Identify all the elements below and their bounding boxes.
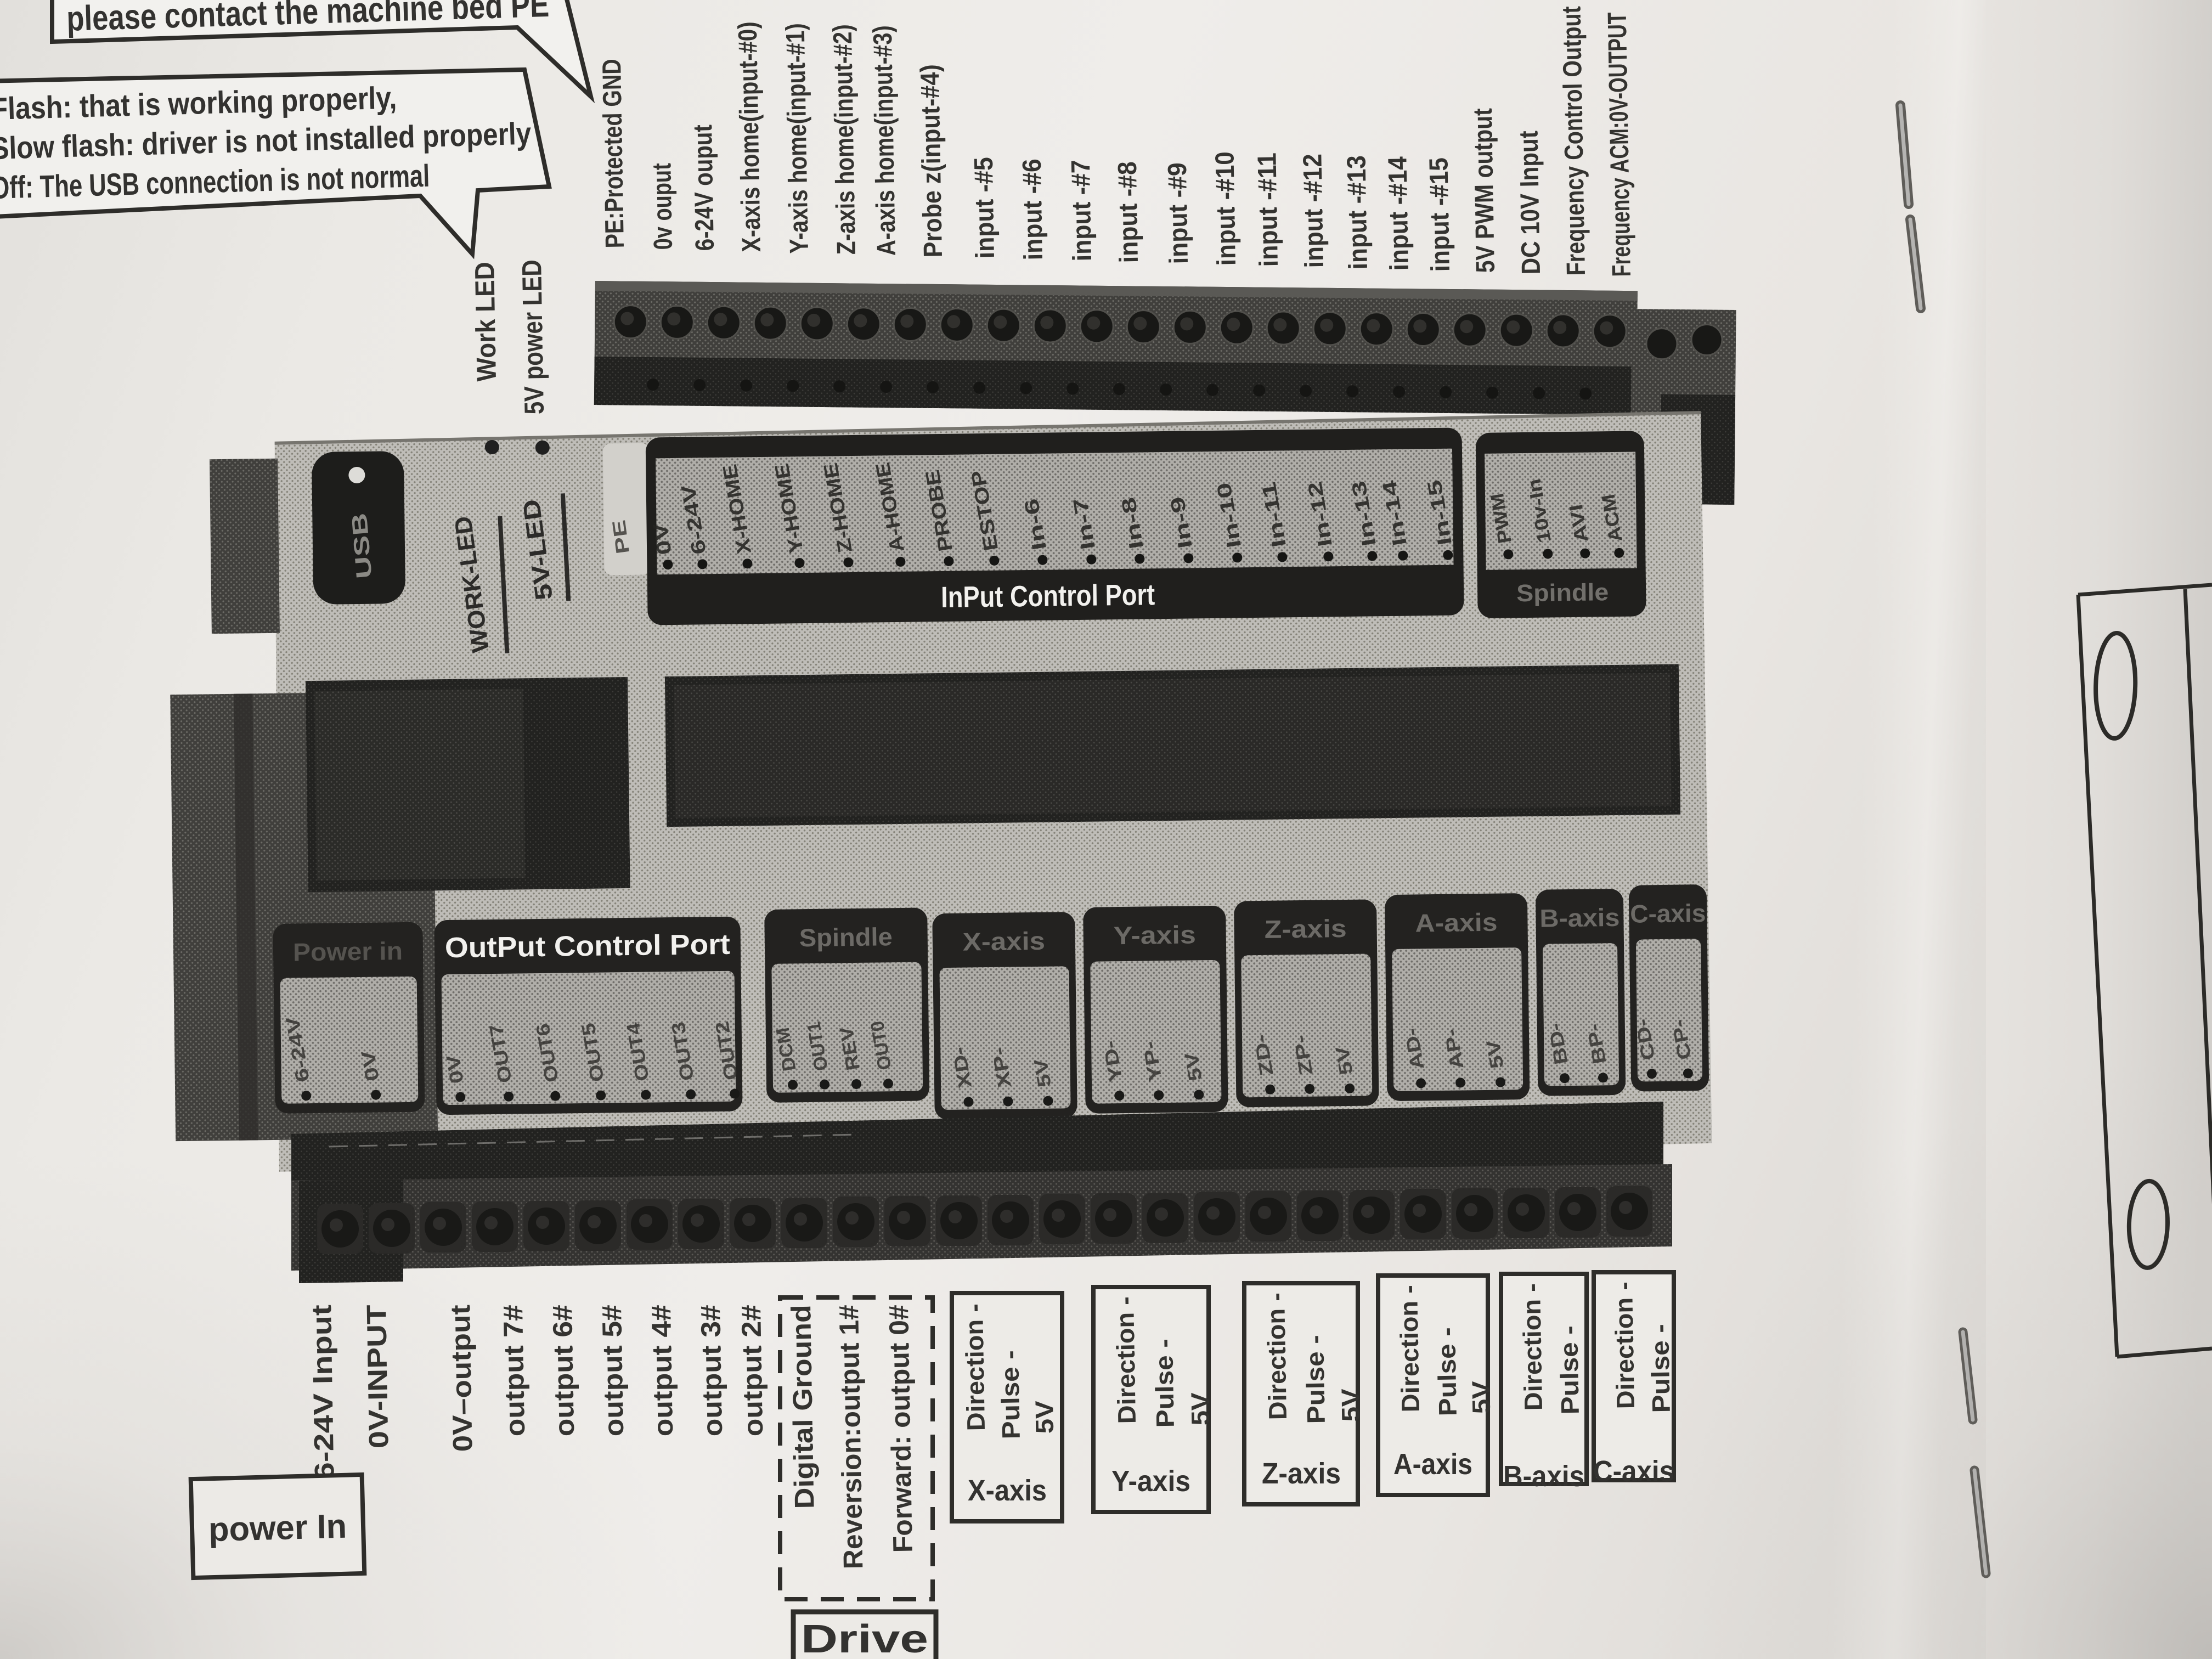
svg-text:0V–output: 0V–output <box>445 1304 478 1452</box>
svg-text:Pulse -: Pulse - <box>1300 1335 1330 1424</box>
svg-text:6-24V Input: 6-24V Input <box>306 1304 340 1480</box>
svg-text:0v ouput: 0v ouput <box>647 163 678 250</box>
svg-text:Frequency Control Output : 0: Frequency Control Output : 0 <box>1556 0 1591 276</box>
svg-text:input -#7: input -#7 <box>1066 160 1097 262</box>
svg-text:B-axis: B-axis <box>1539 903 1620 933</box>
svg-text:A-axis: A-axis <box>1415 908 1498 938</box>
svg-text:Forward: output 0#: Forward: output 0# <box>883 1305 918 1553</box>
svg-text:Reversion:output 1#: Reversion:output 1# <box>833 1305 868 1570</box>
svg-text:Pulse -: Pulse - <box>1149 1339 1180 1428</box>
svg-text:Z-axis: Z-axis <box>1264 914 1347 944</box>
svg-text:A-axis home(input-#3): A-axis home(input-#3) <box>868 25 901 256</box>
svg-text:Pulse -: Pulse - <box>1645 1324 1675 1413</box>
svg-text:Z-axis: Z-axis <box>1262 1457 1341 1490</box>
svg-text:input -#9: input -#9 <box>1163 162 1194 264</box>
svg-text:5V: 5V <box>1466 1380 1496 1414</box>
svg-text:5V PWM output: 5V PWM output <box>1469 108 1500 273</box>
svg-text:Direction -: Direction - <box>1110 1296 1141 1424</box>
svg-text:DC 10V Input: DC 10V Input <box>1514 131 1546 275</box>
svg-text:5V power LED: 5V power LED <box>516 259 550 415</box>
svg-text:Frequency ACM:0V-OUTPUT: Frequency ACM:0V-OUTPUT <box>1603 12 1637 277</box>
svg-text:InPut Control Port: InPut Control Port <box>941 578 1155 614</box>
svg-text:input -#10: input -#10 <box>1210 151 1242 266</box>
svg-text:X-axis: X-axis <box>968 1474 1047 1507</box>
svg-text:output 5#: output 5# <box>596 1305 629 1437</box>
svg-text:output 6#: output 6# <box>547 1305 580 1437</box>
svg-text:Y-axis: Y-axis <box>1113 920 1196 950</box>
svg-text:input -#14: input -#14 <box>1383 156 1414 271</box>
svg-text:OutPut Control Port: OutPut Control Port <box>445 929 731 964</box>
svg-text:output 3#: output 3# <box>695 1305 728 1437</box>
svg-text:Work LED: Work LED <box>469 262 502 382</box>
svg-text:Power in: Power in <box>293 936 403 966</box>
svg-text:Pulse -: Pulse - <box>1554 1325 1584 1415</box>
svg-text:X-axis home(input-#0): X-axis home(input-#0) <box>733 21 766 252</box>
svg-text:input -#13: input -#13 <box>1342 155 1373 270</box>
svg-text:5V: 5V <box>1336 1388 1365 1421</box>
svg-text:Drive: Drive <box>801 1617 928 1659</box>
svg-text:Direction -: Direction - <box>960 1304 990 1431</box>
svg-text:power In: power In <box>208 1508 347 1549</box>
svg-text:input -#6: input -#6 <box>1018 159 1048 261</box>
svg-text:output 2#: output 2# <box>736 1305 769 1437</box>
svg-text:B-axis: B-axis <box>1503 1460 1584 1493</box>
svg-text:input -#12: input -#12 <box>1298 154 1329 268</box>
svg-text:A-axis: A-axis <box>1393 1448 1472 1481</box>
svg-text:5V: 5V <box>1030 1400 1059 1434</box>
svg-text:input -#8: input -#8 <box>1113 161 1144 263</box>
svg-text:Direction -: Direction - <box>1394 1285 1425 1413</box>
svg-text:Y-axis: Y-axis <box>1111 1465 1190 1498</box>
svg-text:Pulse -: Pulse - <box>995 1350 1025 1440</box>
svg-text:Y-axis home(input-#1): Y-axis home(input-#1) <box>781 23 814 254</box>
svg-text:Direction -: Direction - <box>1517 1283 1548 1411</box>
svg-text:Pulse -: Pulse - <box>1432 1327 1462 1417</box>
svg-text:X-axis: X-axis <box>963 927 1046 956</box>
svg-text:0V-INPUT: 0V-INPUT <box>361 1305 394 1449</box>
svg-text:output 4#: output 4# <box>646 1305 679 1437</box>
svg-text:Direction -: Direction - <box>1261 1293 1292 1420</box>
svg-text:input -#15: input -#15 <box>1424 157 1455 272</box>
svg-text:Digital Ground: Digital Ground <box>786 1305 820 1509</box>
svg-text:Spindle: Spindle <box>1516 579 1609 607</box>
svg-text:C-axis: C-axis <box>1630 899 1706 928</box>
svg-text:input -#5: input -#5 <box>969 157 1000 259</box>
svg-text:Spindle: Spindle <box>799 922 893 952</box>
svg-text:Direction -: Direction - <box>1609 1282 1640 1409</box>
svg-text:6-24V ouput: 6-24V ouput <box>689 125 720 251</box>
svg-text:input -#11: input -#11 <box>1252 153 1284 267</box>
svg-text:5V: 5V <box>1186 1392 1215 1425</box>
svg-text:PE:Protected GND: PE:Protected GND <box>597 59 630 249</box>
svg-text:Probe z(input-#4): Probe z(input-#4) <box>916 64 948 258</box>
svg-text:C-axis: C-axis <box>1593 1455 1674 1488</box>
svg-text:output 7#: output 7# <box>498 1305 531 1437</box>
svg-text:Z-axis home(input-#2): Z-axis home(input-#2) <box>828 24 861 255</box>
